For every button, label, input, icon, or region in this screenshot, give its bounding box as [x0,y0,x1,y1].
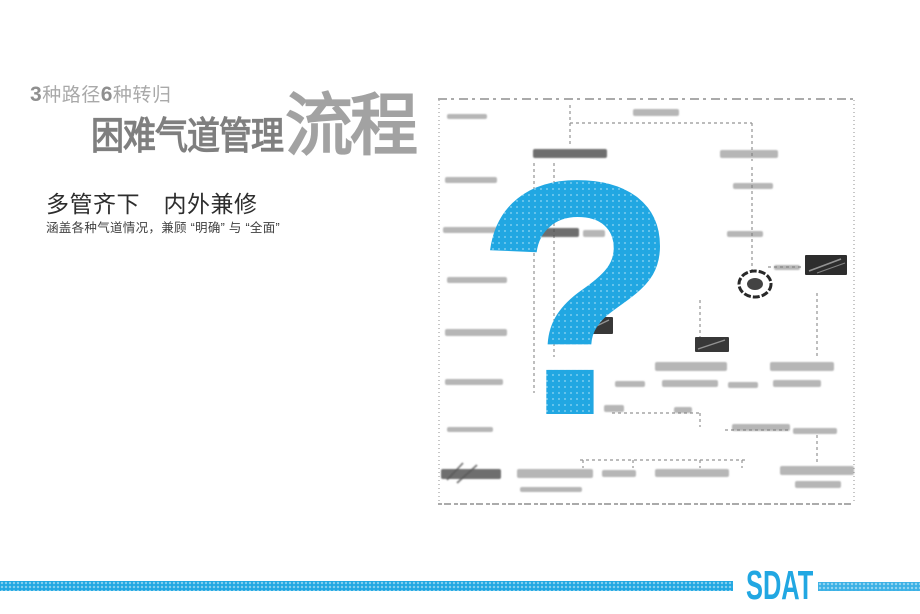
kicker-number-1: 3 [30,83,42,106]
page-title: 困难气道管理 流程 [91,92,415,160]
brand-logo: SDAT [746,568,813,602]
title-accent: 流程 [285,92,415,160]
title-main: 困难气道管理 [91,116,283,154]
question-mark-overlay: ? [475,111,680,485]
description-line: 涵盖各种气道情况，兼顾 “明确” 与 “全面” [46,221,280,236]
presentation-slide: 3种路径6种转归 困难气道管理 流程 多管齐下 内外兼修 涵盖各种气道情况，兼顾… [0,0,920,614]
flowchart-figure: ? [437,97,857,507]
footer-accent-bar-right [818,582,920,591]
subtitle: 多管齐下 内外兼修 [46,191,258,217]
footer-accent-bar-left [0,581,733,591]
flowchart-scan: ? [437,97,857,507]
